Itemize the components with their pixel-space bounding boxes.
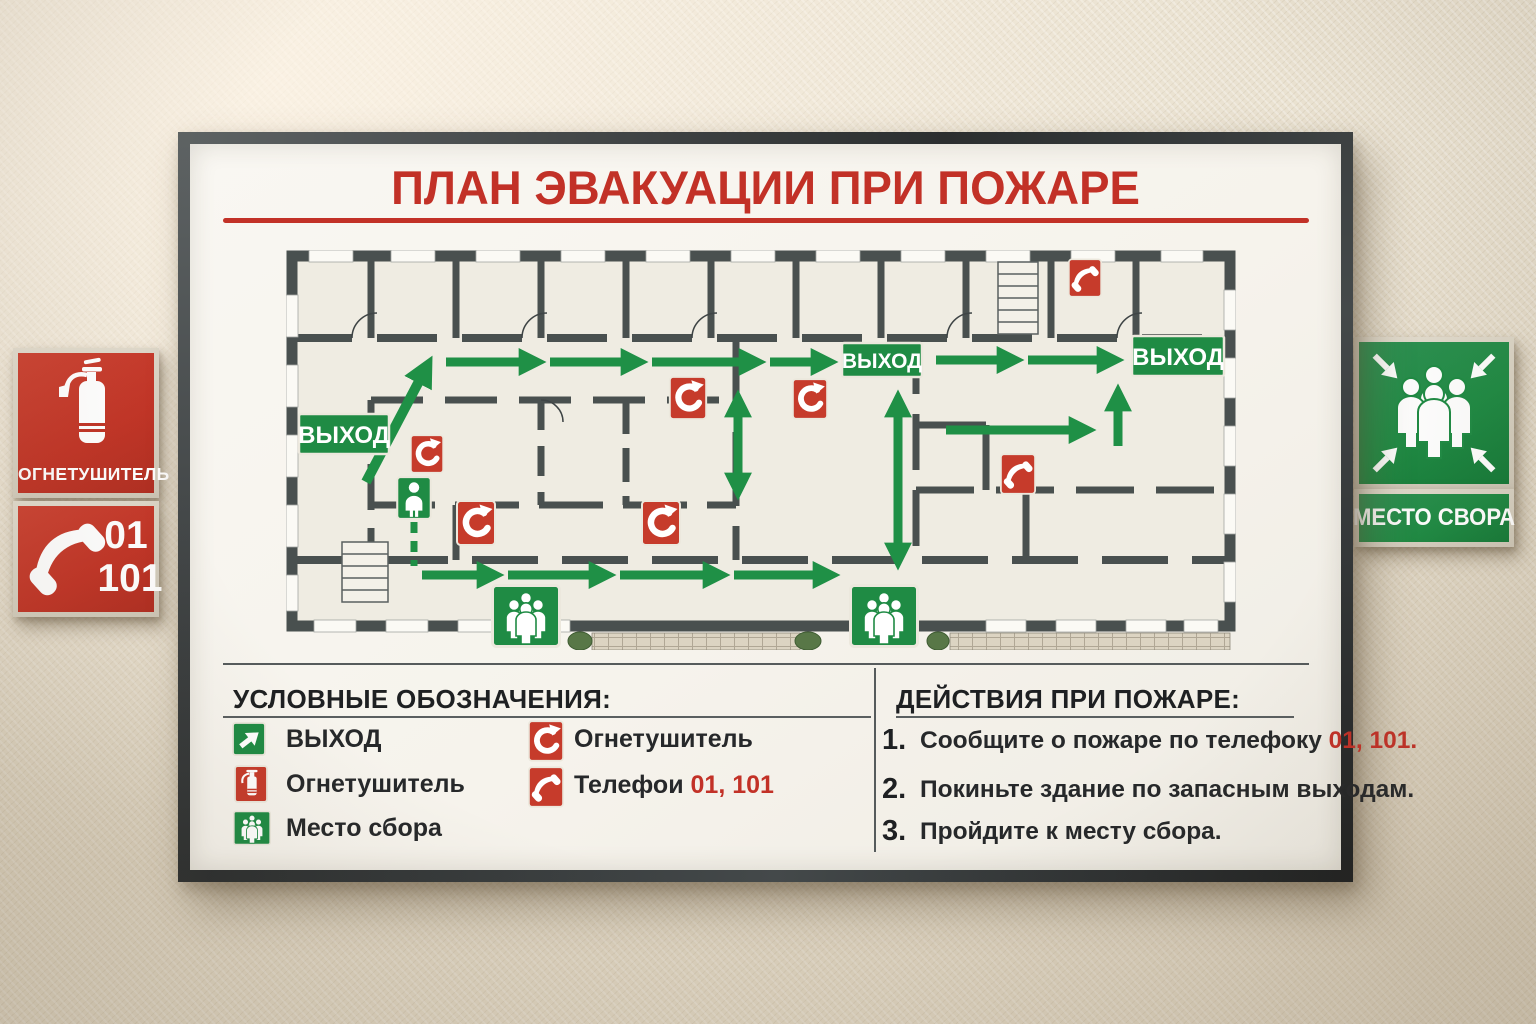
extinguisher-handset-icon [457, 501, 495, 545]
extinguisher-handset-icon [642, 501, 680, 545]
assembly-point-icon [493, 586, 560, 647]
svg-text:ВЫХОД: ВЫХОД [842, 350, 922, 373]
action-highlight: 01, 101. [1329, 727, 1418, 754]
legend-phone-numbers: 01, 101 [691, 771, 774, 799]
assembly-point-wall-sign [1354, 337, 1514, 489]
assembly-point-icon [1359, 342, 1509, 484]
extinguisher-handset-icon [793, 379, 827, 419]
exit-sign-middle: ВЫХОД [842, 343, 922, 377]
columns-divider [874, 668, 876, 852]
floor-plan: ВЫХОД ВЫХОД ВЫХОД [286, 250, 1236, 650]
extinguisher-handset-icon [528, 720, 564, 762]
assembly-point-icon [233, 810, 271, 846]
extinguisher-handset-icon [670, 377, 706, 419]
photo-wall: ОГНЕТУШИТЕЛЬ 01 101 [0, 0, 1536, 1024]
assembly-sign-label: МЕСТО СВОРА [1353, 504, 1515, 532]
legend-phone-word: Телефои [574, 771, 684, 799]
fire-extinguisher-icon [234, 764, 268, 804]
legend-label: ВЫХОД [286, 725, 381, 754]
telephone-handset-icon [528, 766, 564, 808]
action-item-3: 3. Пройдите к месту сбора. [882, 815, 1222, 848]
legend-heading-underline [223, 716, 871, 718]
action-number: 2. [882, 773, 920, 806]
legend-label: Телефои 01, 101 [574, 771, 774, 800]
title-underline [223, 218, 1309, 223]
legend-label: Огнетушитель [574, 725, 753, 754]
assembly-point-icon [851, 586, 918, 647]
exit-arrow-icon [232, 722, 266, 756]
action-item-2: 2. Покиньте здание по запасным выходам. [882, 773, 1414, 806]
action-text: Сообщите о пожаре по телефоку [920, 727, 1329, 754]
phone-number-01: 01 [58, 514, 194, 558]
legend-heading: УСЛОВНЫЕ ОБОЗНАЧЕНИЯ: [233, 684, 611, 715]
extinguisher-sign-label: ОГНЕТУШИТЕЛЬ [18, 464, 154, 485]
extinguisher-handset-icon [411, 435, 443, 472]
telephone-handset-icon [1000, 454, 1035, 494]
action-number: 3. [882, 815, 920, 848]
exit-sign-left: ВЫХОД [298, 414, 390, 454]
exit-sign-right: ВЫХОД [1132, 336, 1224, 376]
extinguisher-wall-sign: ОГНЕТУШИТЕЛЬ [13, 348, 159, 498]
actions-heading-underline [896, 716, 1294, 718]
board-title: ПЛАН ЭВАКУАЦИИ ПРИ ПОЖАРЕ [207, 160, 1323, 215]
fire-extinguisher-icon [46, 357, 126, 453]
assembly-point-text-sign: МЕСТО СВОРА [1354, 489, 1514, 547]
action-item-1: 1. Сообщите о пожаре по телефоку 01, 101… [882, 724, 1417, 757]
fire-phone-wall-sign: 01 101 [13, 501, 159, 617]
svg-text:ВЫХОД: ВЫХОД [1132, 344, 1224, 371]
sections-divider [223, 663, 1309, 665]
legend-label: Огнетушитель [286, 770, 465, 799]
svg-text:ВЫХОД: ВЫХОД [298, 422, 390, 449]
action-text: Покиньте здание по запасным выходам. [920, 776, 1414, 803]
legend-label: Место сбора [286, 814, 442, 843]
actions-heading: ДЕЙСТВИЯ ПРИ ПОЖАРЕ: [896, 684, 1240, 715]
action-text: Пройдите к месту сбора. [920, 818, 1222, 845]
evacuation-plan-board: ПЛАН ЭВАКУАЦИИ ПРИ ПОЖАРЕ [178, 132, 1353, 882]
telephone-handset-icon [1068, 259, 1101, 296]
person-icon [397, 477, 431, 519]
action-number: 1. [882, 724, 920, 757]
